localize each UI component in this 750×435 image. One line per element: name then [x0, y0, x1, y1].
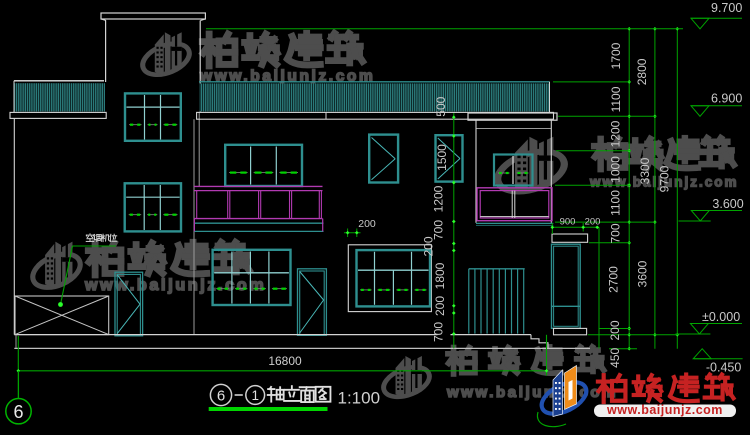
svg-text:200: 200	[421, 236, 435, 256]
svg-text:1500: 1500	[435, 144, 449, 171]
svg-text:www.baijunjz.com: www.baijunjz.com	[446, 384, 618, 401]
svg-text:200: 200	[433, 296, 447, 316]
svg-text:9700: 9700	[658, 165, 672, 192]
svg-text:3300: 3300	[638, 157, 652, 184]
svg-text:6: 6	[13, 402, 23, 422]
svg-text:500: 500	[434, 96, 448, 116]
svg-text:3.600: 3.600	[712, 197, 743, 211]
svg-text:700: 700	[609, 223, 623, 243]
svg-text:1700: 1700	[609, 42, 623, 69]
svg-text:2800: 2800	[635, 58, 649, 85]
svg-text:1100: 1100	[609, 86, 623, 112]
svg-text:www.baijunjz.com: www.baijunjz.com	[84, 277, 266, 294]
svg-text:6.900: 6.900	[711, 92, 742, 106]
svg-text:6: 6	[217, 388, 225, 405]
svg-text:200: 200	[608, 320, 622, 340]
svg-text:2700: 2700	[607, 266, 621, 293]
svg-text:-0.450: -0.450	[706, 361, 741, 375]
svg-text:200: 200	[358, 218, 376, 230]
svg-text:1800: 1800	[433, 262, 447, 289]
svg-text:3600: 3600	[636, 260, 650, 287]
svg-text:1200: 1200	[432, 185, 446, 212]
svg-text:700: 700	[432, 322, 446, 342]
svg-text:1200: 1200	[609, 120, 623, 147]
svg-text:1100: 1100	[609, 190, 623, 216]
svg-text:9.700: 9.700	[711, 1, 742, 15]
svg-text:16800: 16800	[268, 354, 302, 368]
svg-text:450: 450	[608, 347, 622, 367]
svg-text:1000: 1000	[609, 156, 623, 183]
svg-text:±0.000: ±0.000	[702, 310, 740, 324]
svg-text:1: 1	[251, 388, 259, 403]
svg-text:200: 200	[585, 217, 601, 228]
svg-text:900: 900	[560, 217, 576, 228]
svg-text:www.baijunjz.com: www.baijunjz.com	[606, 403, 723, 417]
svg-text:1:100: 1:100	[338, 389, 381, 408]
